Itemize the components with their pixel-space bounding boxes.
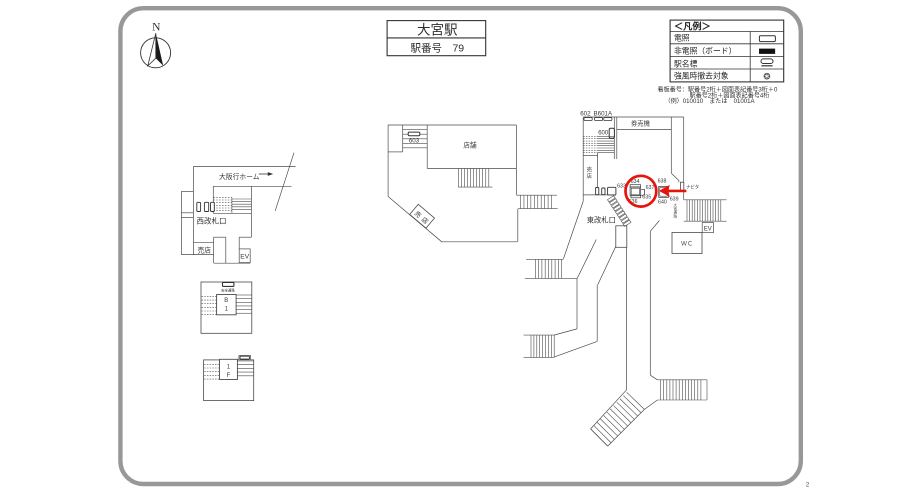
- svg-text:F: F: [227, 373, 231, 379]
- svg-text:603: 603: [409, 138, 420, 145]
- svg-text:売: 売: [587, 166, 593, 174]
- svg-text:路: 路: [674, 213, 678, 218]
- svg-text:B601A: B601A: [594, 110, 613, 117]
- svg-text:＜凡例＞: ＜凡例＞: [674, 20, 711, 31]
- svg-text:大阪行ホーム: 大阪行ホーム: [219, 172, 260, 181]
- svg-text:EV: EV: [240, 254, 249, 261]
- svg-text:強風時撤去対象: 強風時撤去対象: [674, 70, 729, 80]
- svg-text:639: 639: [670, 196, 679, 202]
- svg-text:ＷＣ: ＷＣ: [681, 240, 693, 247]
- svg-text:店舗: 店舗: [463, 141, 477, 150]
- svg-text:600: 600: [598, 131, 609, 137]
- svg-text:券売機: 券売機: [631, 118, 651, 127]
- svg-text:640: 640: [658, 199, 667, 205]
- svg-text:西改札口: 西改札口: [197, 215, 227, 225]
- svg-text:安全通路: 安全通路: [221, 288, 235, 293]
- svg-text:B: B: [224, 298, 228, 304]
- svg-text:駅名標: 駅名標: [674, 58, 698, 68]
- svg-text:638: 638: [658, 179, 667, 185]
- svg-text:N: N: [152, 22, 161, 34]
- svg-text:（例）010010 または 01001A: （例）010010 または 01001A: [665, 97, 756, 105]
- svg-text:駅番号 79: 駅番号 79: [410, 43, 464, 55]
- svg-text:大宮駅: 大宮駅: [417, 22, 458, 37]
- svg-text:637: 637: [646, 185, 655, 191]
- svg-text:売店: 売店: [198, 245, 212, 254]
- svg-text:電照: 電照: [674, 34, 690, 43]
- svg-text:非電照（ボード）: 非電照（ボード）: [674, 46, 736, 56]
- svg-text:602: 602: [580, 110, 591, 117]
- svg-text:ナビタ: ナビタ: [686, 184, 699, 191]
- svg-text:店: 店: [587, 172, 593, 180]
- svg-text:2: 2: [806, 482, 810, 489]
- svg-text:東改札口: 東改札口: [587, 216, 616, 225]
- svg-text:635: 635: [642, 194, 651, 200]
- svg-text:EV: EV: [704, 226, 712, 232]
